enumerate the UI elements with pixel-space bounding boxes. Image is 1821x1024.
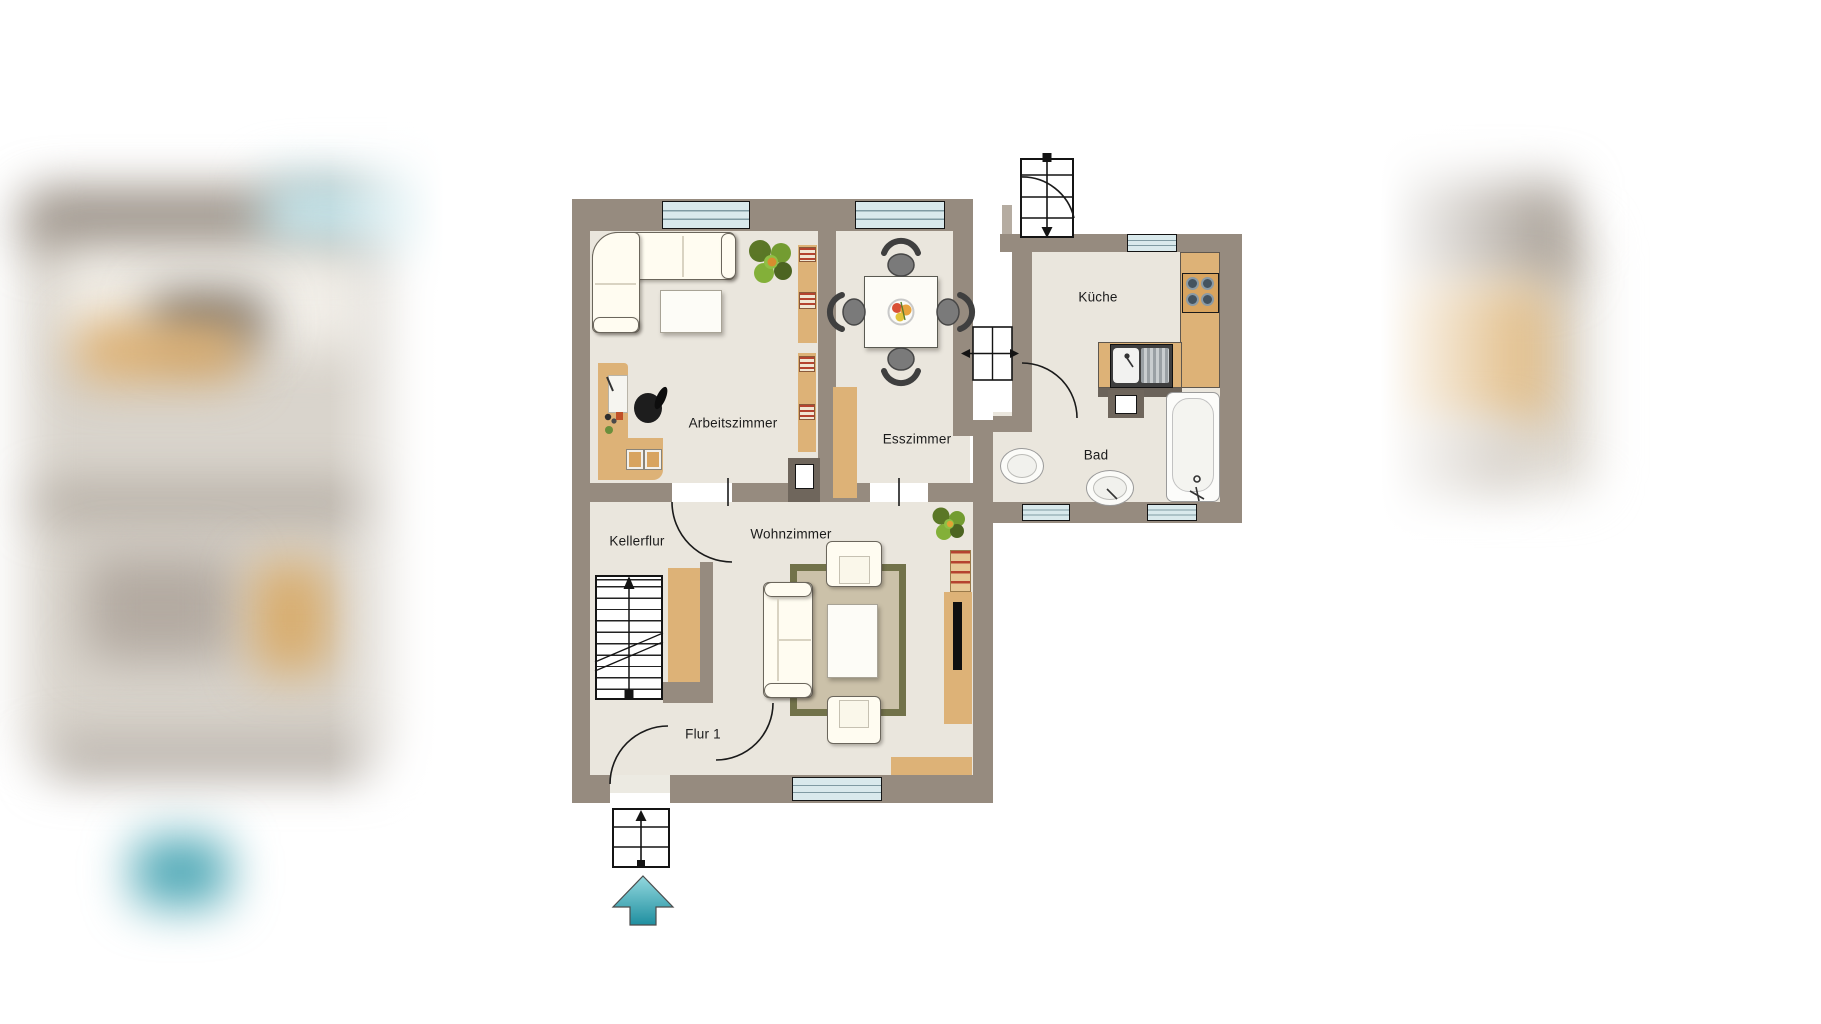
room-label-wohnzimmer: Wohnzimmer [750, 527, 831, 542]
desk-paper [608, 375, 628, 413]
window-icon-kueche [1127, 234, 1177, 252]
wall-bottom-1 [590, 775, 610, 803]
window-icon-bad-1 [1022, 504, 1070, 521]
floorplan: Arbeitszimmer Esszimmer Küche Bad Keller… [0, 0, 1821, 1024]
coffee-table-icon [660, 290, 722, 333]
window-icon-esszimmer [855, 201, 945, 229]
sink-drainboard [1141, 348, 1169, 383]
room-label-arbeitszimmer: Arbeitszimmer [689, 416, 778, 431]
books-icon [799, 247, 816, 262]
sink-basin [1113, 348, 1139, 383]
floorplan-page: Arbeitszimmer Esszimmer Küche Bad Keller… [0, 0, 1821, 1024]
wall-esszimmer-east [953, 199, 973, 436]
burner-icon [1186, 277, 1199, 290]
books-icon [799, 356, 815, 372]
room-label-kellerflur: Kellerflur [609, 534, 664, 549]
armchair-cushion [839, 556, 870, 584]
stove-icon [1182, 273, 1219, 313]
room-label-flur1: Flur 1 [685, 727, 721, 742]
bathtub-inner [1172, 398, 1214, 492]
coffee-table-icon [827, 604, 878, 678]
lowboard-icon [891, 757, 972, 775]
shaft-icon [1115, 395, 1137, 414]
room-label-kueche: Küche [1078, 290, 1117, 305]
sink-icon [1110, 344, 1173, 388]
sofa-armrest [764, 683, 812, 698]
wall-kellerflur-east [700, 562, 713, 682]
wardrobe-icon [668, 568, 700, 682]
burner-icon [1201, 277, 1214, 290]
window-icon-arbeitszimmer [662, 201, 750, 229]
tv-icon [953, 602, 962, 670]
wall-left [572, 199, 590, 803]
wall-rightsection-east [1220, 252, 1242, 523]
wall-kellerflur-south [663, 682, 713, 703]
entry-steps-icon [612, 808, 670, 868]
books-icon [799, 292, 816, 309]
sideboard-icon [833, 387, 857, 498]
room-label-esszimmer: Esszimmer [883, 432, 952, 447]
sofa-armrest [593, 317, 639, 333]
sofa-seam [595, 283, 636, 285]
burner-icon [1201, 293, 1214, 306]
books-icon [799, 404, 815, 420]
window-icon-bad-2 [1147, 504, 1197, 521]
basement-stairs-icon [595, 575, 663, 700]
sofa-armrest [764, 582, 812, 597]
wall-bad-door [993, 416, 1022, 432]
armchair-cushion [839, 700, 869, 728]
sofa-seam [779, 639, 811, 641]
wall-kueche-west [1012, 252, 1032, 432]
visitor-chair-icon [627, 450, 643, 469]
sofa-armrest [721, 233, 736, 279]
wall-east-lower [973, 436, 993, 803]
entry-gap-floor [610, 775, 670, 793]
shaft-icon [795, 464, 814, 489]
wall-mid-1 [590, 483, 672, 502]
dining-table-icon [864, 276, 938, 348]
room-label-bad: Bad [1084, 448, 1109, 463]
wall-stub-stairs [1002, 205, 1012, 234]
wall-jog [953, 420, 993, 436]
entry-arrow-up-icon [613, 876, 673, 925]
sofa-seam [682, 236, 684, 277]
wall-mid-3 [928, 483, 973, 502]
outdoor-stairs-icon [1020, 158, 1074, 238]
toilet-bowl [1007, 454, 1037, 478]
burner-icon [1186, 293, 1199, 306]
visitor-chair-icon [645, 450, 661, 469]
window-icon-wohnzimmer [792, 777, 882, 801]
radiator-icon [950, 550, 971, 592]
washbasin-bowl [1093, 476, 1127, 500]
